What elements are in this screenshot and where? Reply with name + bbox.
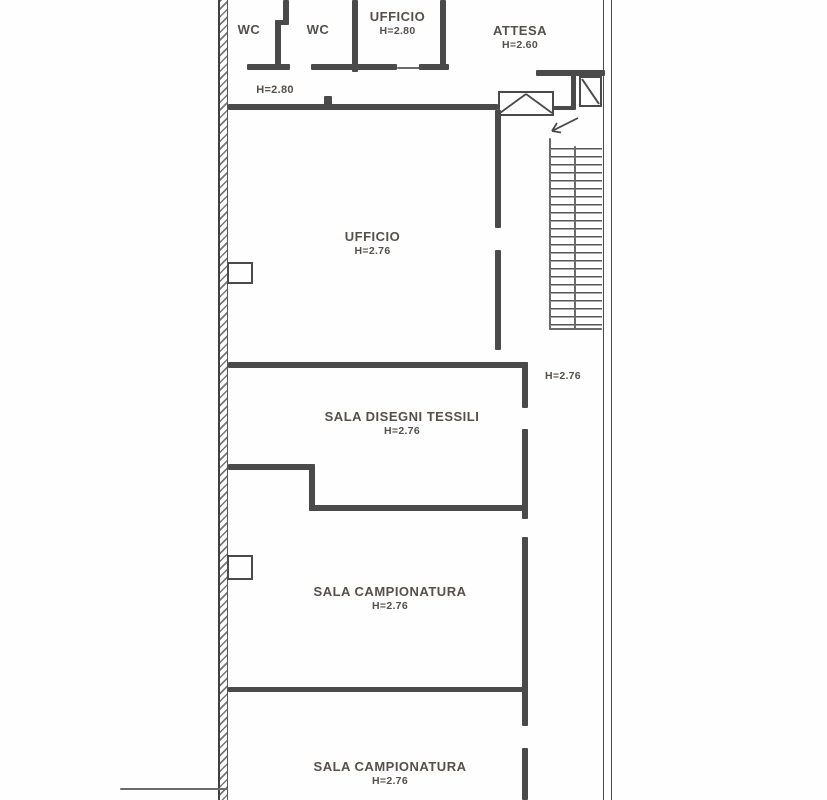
room-name: SALA DISEGNI TESSILI	[297, 410, 507, 425]
left-wall-box-lower	[227, 555, 253, 580]
wall-stairwell-left-upper	[495, 110, 501, 228]
room-label-attesa: ATTESA H=2.60	[465, 24, 575, 51]
room-label-sala-campionatura-1: SALA CAMPIONATURA H=2.76	[285, 585, 495, 612]
wall-corridor-tab	[324, 96, 332, 105]
outer-wall-left	[218, 0, 228, 800]
room-height: H=2.80	[340, 25, 455, 37]
floor-plan: WC WC UFFICIO H=2.80 ATTESA H=2.60 H=2.8…	[0, 0, 827, 800]
room-label-sala-campionatura-2: SALA CAMPIONATURA H=2.76	[285, 760, 495, 787]
duct-diagonal-icon	[581, 78, 600, 105]
wall-front-wc2	[311, 64, 397, 70]
wall-step-left	[228, 464, 315, 470]
wall-right-partition-c	[522, 537, 528, 726]
left-wall-box-upper	[227, 262, 253, 284]
wall-right-partition-a	[522, 362, 528, 408]
wall-shaft-bottom-tick	[553, 106, 573, 110]
wall-step-right	[309, 505, 528, 511]
stair-bottom-edge	[549, 328, 602, 330]
height-label-stair-landing: H=2.76	[545, 370, 605, 382]
wall-right-partition-d	[522, 748, 528, 800]
wall-corridor	[228, 104, 498, 110]
wall-ufficio-sala-disegni	[228, 362, 528, 368]
room-height: H=2.60	[465, 39, 575, 51]
room-label-wc2: WC	[293, 23, 343, 38]
room-label-ufficio-main: UFFICIO H=2.76	[315, 230, 430, 257]
wall-wc-divider-lower	[275, 20, 281, 70]
elevator-diagonals-icon	[500, 93, 552, 114]
stair-stringer	[574, 146, 576, 330]
room-height: H=2.76	[285, 775, 495, 787]
room-label-ufficio-top: UFFICIO H=2.80	[340, 10, 455, 37]
door-threshold-ufficio-top	[397, 67, 421, 69]
room-label-sala-disegni: SALA DISEGNI TESSILI H=2.76	[297, 410, 507, 437]
room-name: ATTESA	[465, 24, 575, 39]
room-name: SALA CAMPIONATURA	[285, 585, 495, 600]
room-label-wc1: WC	[224, 23, 274, 38]
room-height: H=2.76	[297, 425, 507, 437]
wall-front-wc1	[247, 64, 290, 70]
room-name: UFFICIO	[340, 10, 455, 25]
stair-direction-arrow-icon	[542, 112, 586, 140]
room-name: SALA CAMPIONATURA	[285, 760, 495, 775]
room-height: H=2.76	[285, 600, 495, 612]
bottom-left-line	[120, 788, 228, 790]
duct-shaft-box	[579, 76, 602, 107]
wall-stairwell-left-lower	[495, 250, 501, 350]
stair-treads	[551, 148, 602, 328]
wall-step-vertical	[309, 464, 315, 511]
outer-wall-right	[603, 0, 612, 800]
room-name: UFFICIO	[315, 230, 430, 245]
room-height: H=2.76	[315, 245, 430, 257]
wall-sala-campionatura-divider	[228, 687, 528, 692]
wall-shaft-left	[571, 74, 576, 110]
height-label-corridor: H=2.80	[240, 84, 310, 97]
wall-front-attesa-cap	[419, 64, 449, 70]
